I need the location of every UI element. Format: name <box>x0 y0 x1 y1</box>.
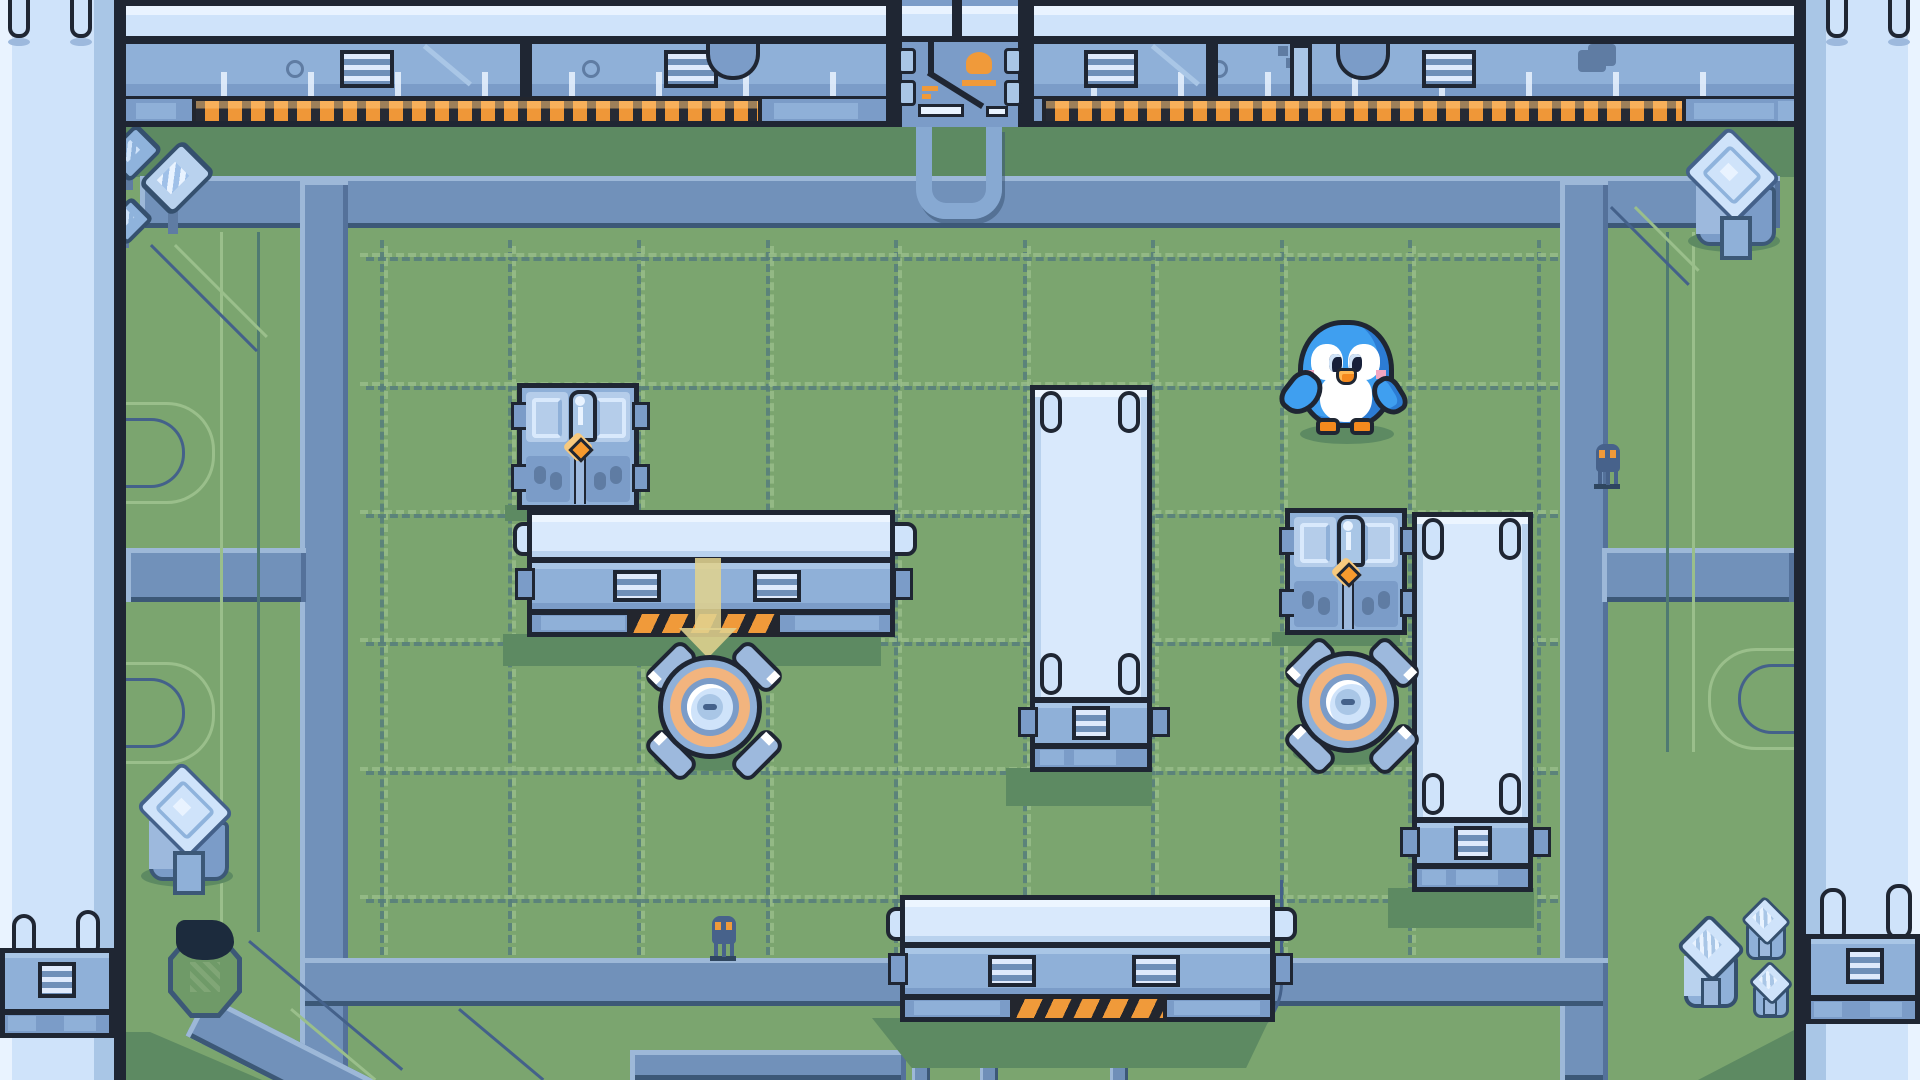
trace-vertical <box>257 232 260 932</box>
pit-hole <box>168 932 242 1018</box>
gate-mark <box>922 94 931 99</box>
critter-eye <box>726 922 732 930</box>
gate-lamp-icon <box>966 52 992 74</box>
vent-grille <box>1422 50 1476 88</box>
sliding-crate-horizontal[interactable] <box>900 895 1275 1022</box>
crate-shadow <box>1006 768 1152 806</box>
wall-peg <box>1886 884 1912 940</box>
trace-vertical <box>1692 232 1695 752</box>
critter <box>704 910 744 964</box>
critter-eye <box>1610 450 1616 458</box>
rivet <box>582 60 600 78</box>
pipe-bottom-edge-stub <box>630 1050 906 1080</box>
carved-block[interactable] <box>517 383 639 510</box>
gate-seam <box>928 40 934 74</box>
critter-eye <box>1599 450 1605 458</box>
critter <box>1588 438 1628 492</box>
crate-shadow <box>1388 888 1534 928</box>
pedestal <box>135 765 235 893</box>
trace-vertical <box>1666 232 1669 752</box>
pipe-right-wall-connector <box>1602 548 1794 602</box>
carved-block[interactable] <box>1285 508 1407 635</box>
gate-latch <box>1004 80 1022 106</box>
crystal <box>146 144 200 240</box>
wall-peg <box>1888 0 1910 38</box>
crystal-cube <box>1740 898 1786 960</box>
gate-slot <box>986 106 1008 117</box>
pressure-button[interactable] <box>648 645 772 775</box>
gizmo-dots <box>1278 46 1288 56</box>
vent-grille <box>1084 50 1138 88</box>
wall-peg <box>8 0 30 38</box>
sliding-crate-vertical[interactable] <box>1030 385 1152 772</box>
penguin-foot <box>1316 418 1340 435</box>
pipe-left-vertical <box>300 180 348 1080</box>
right-wall <box>1794 0 1920 1080</box>
rivet <box>286 60 304 78</box>
down-arrow-indicator <box>695 558 721 630</box>
gate-latch <box>898 48 916 74</box>
pit-hole-rim-shadow <box>176 920 234 960</box>
wall-base-vent <box>1846 948 1884 984</box>
critter-eye <box>715 922 721 930</box>
vent-grille <box>340 50 394 88</box>
crystal-cube <box>1748 962 1788 1018</box>
sliding-crate-vertical[interactable] <box>1412 512 1533 892</box>
pressure-button[interactable] <box>1288 642 1408 768</box>
crystal-cube <box>1676 916 1738 1012</box>
wall-peg <box>1826 0 1848 38</box>
gizmo-relief <box>1588 44 1616 66</box>
gate-latch <box>898 80 916 106</box>
gate-mark <box>922 86 938 91</box>
wall-post <box>1290 44 1312 100</box>
gate-slot <box>918 104 964 117</box>
gate-latch <box>1004 48 1022 74</box>
wall-base-vent <box>38 962 76 998</box>
wall-trace-capsule <box>1738 664 1797 734</box>
sliding-crate-horizontal[interactable] <box>527 510 895 637</box>
crate-shadow <box>872 1018 1270 1068</box>
penguin-foot <box>1350 418 1374 435</box>
wall-peg <box>70 0 92 38</box>
player-penguin[interactable] <box>1292 318 1402 444</box>
pipe-left-wall-connector <box>126 548 306 602</box>
left-wall <box>0 0 126 1080</box>
gate-lamp-base <box>962 80 996 86</box>
pipe-right-vertical <box>1560 180 1608 1080</box>
pipe-gate-stub <box>916 127 1002 219</box>
game-viewport[interactable] <box>0 0 1920 1080</box>
penguin-beak <box>1336 368 1357 385</box>
pedestal <box>1682 130 1782 258</box>
top-gate[interactable] <box>886 0 1034 127</box>
